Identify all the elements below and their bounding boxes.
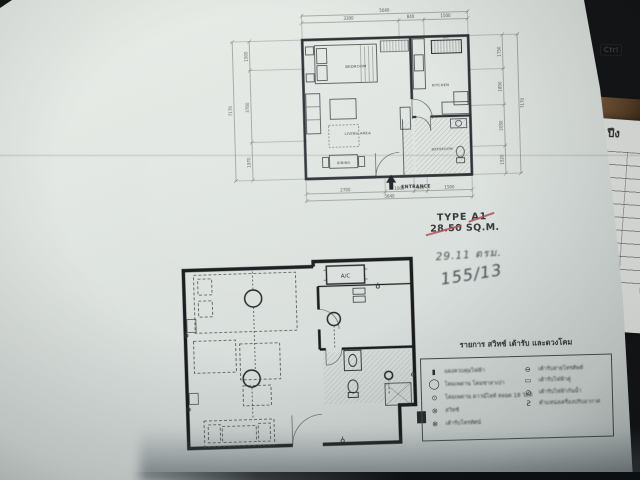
- downlight-symbol: ⊙: [428, 393, 441, 401]
- living-area-label: LIVING AREA: [345, 130, 372, 136]
- svg-text:1520: 1520: [499, 154, 504, 165]
- keyboard-key-in-background: Ctrl: [600, 44, 623, 57]
- entrance-label: ENTRANCE: [401, 184, 431, 191]
- photo-bottom-edge: [130, 472, 640, 480]
- telephone-outlet-symbol: ⊖: [521, 365, 534, 373]
- aircon-label: A/C: [341, 273, 351, 279]
- kitchen-label: KITCHEN: [432, 83, 449, 87]
- svg-text:7170: 7170: [520, 97, 525, 108]
- ac-ledge-label: A/C: [443, 35, 449, 39]
- waterproof-outlet-symbol: ⊘: [522, 388, 535, 396]
- furniture-ghosts: [191, 272, 300, 447]
- photo-of-floorplan-document: Ctrl ปีง: [0, 0, 640, 480]
- duplex-outlet-symbol: ▭: [521, 377, 534, 385]
- svg-text:2050: 2050: [498, 120, 503, 131]
- svg-text:7170: 7170: [228, 106, 233, 117]
- svg-text:840: 840: [407, 14, 415, 19]
- svg-text:5640: 5640: [379, 8, 390, 13]
- svg-text:1500: 1500: [444, 184, 455, 189]
- svg-text:1970: 1970: [246, 157, 251, 168]
- legend-left-column: ▮ แผงควบคุมไฟฟ้า ◯ โคมเพดาน โคมซาลาเปา ⊙…: [427, 363, 533, 431]
- ceiling-lamp-symbol: ◯: [427, 379, 440, 390]
- lower-electrical-plan: A/C: [177, 254, 428, 457]
- svg-text:5640: 5640: [384, 194, 395, 199]
- upper-floor-plan: 5640 3300 840 1500 7170 1500 3700 1970 1…: [225, 0, 531, 210]
- tv-outlet-symbol: ⊗: [429, 419, 442, 427]
- svg-text:3300: 3300: [343, 16, 354, 21]
- legend-item: Ƨ ตำแหน่งเครื่องปรับอากาศ: [522, 396, 600, 410]
- switch-symbol: ⊚: [428, 406, 441, 414]
- bathroom-floor-hatch: [323, 350, 413, 405]
- svg-text:2700: 2700: [340, 187, 351, 192]
- aircon-box: A/C: [323, 265, 368, 303]
- bedroom-label: BEDROOM: [345, 63, 366, 69]
- svg-text:1850: 1850: [497, 81, 502, 92]
- handwritten-notes: 29.11 ตรม. 155/13: [435, 245, 503, 285]
- underlying-sheet-header: ปีง: [607, 124, 640, 146]
- legend-right-column: ⊖ เต้ารับสายโทรศัพท์ ▭ เต้ารับไฟฟ้าคู่ ⊘…: [521, 362, 600, 410]
- load-center-symbol: ▮: [427, 368, 440, 376]
- svg-text:1500: 1500: [243, 51, 248, 62]
- svg-text:1500: 1500: [440, 13, 451, 18]
- bathroom-label: BATHROOM: [432, 147, 453, 152]
- unit-type-block: TYPE A1 28.50 SQ.M.: [430, 209, 561, 234]
- aircon-position-symbol: Ƨ: [522, 400, 535, 408]
- dining-label: DINING: [337, 161, 351, 165]
- svg-text:3700: 3700: [245, 102, 250, 113]
- svg-text:1750: 1750: [496, 46, 501, 57]
